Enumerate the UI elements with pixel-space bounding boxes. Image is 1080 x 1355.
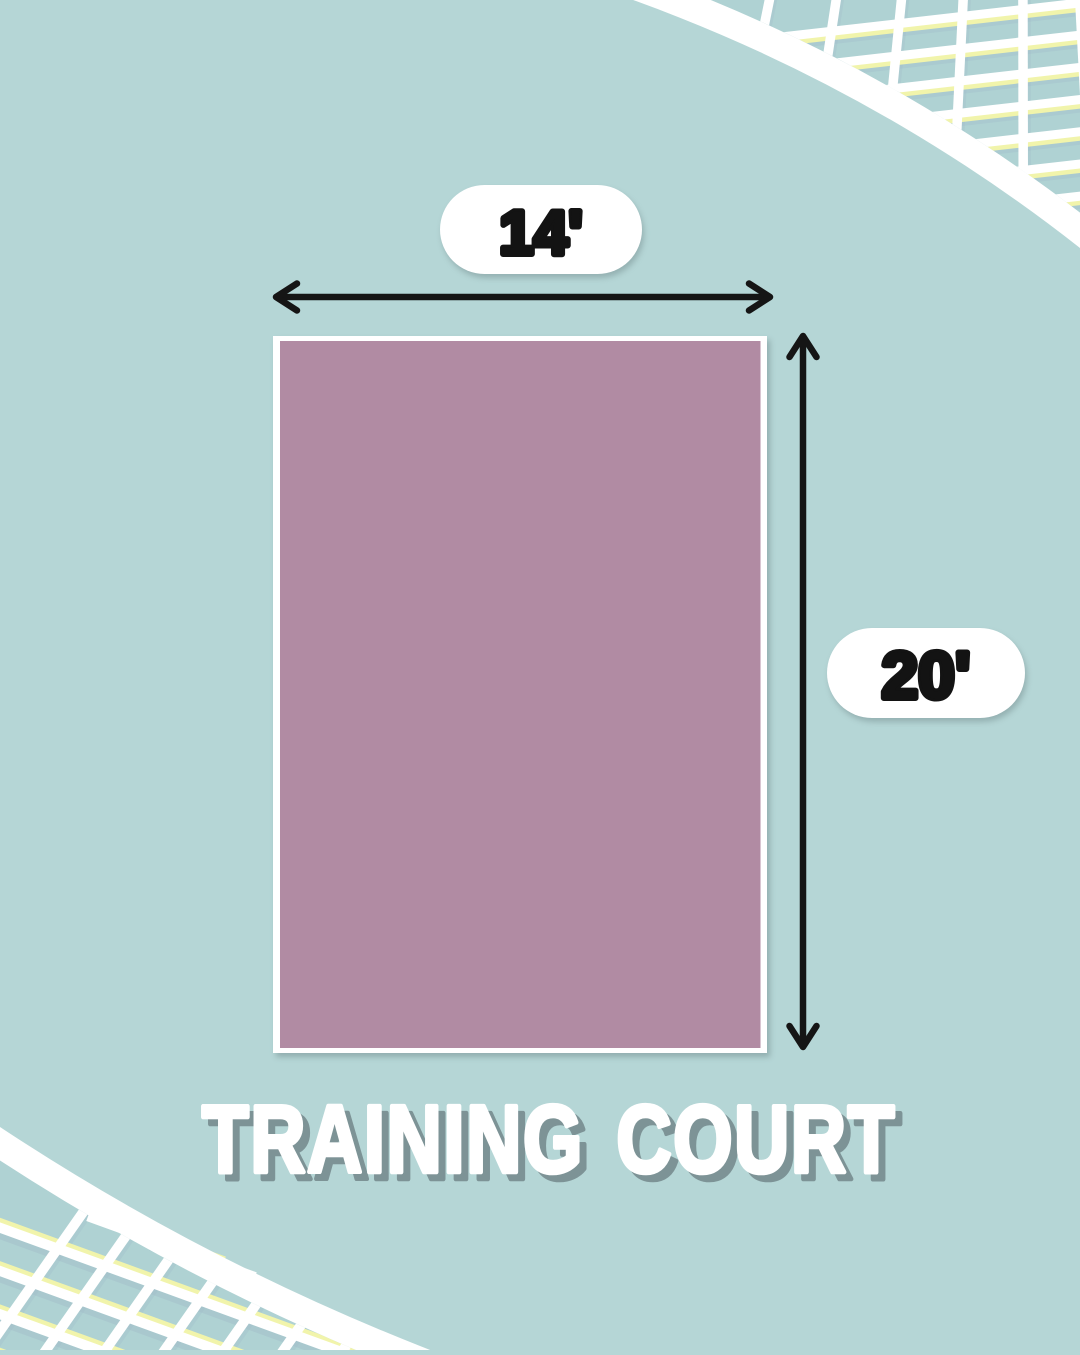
svg-text:TRAINING COURT: TRAINING COURT bbox=[202, 1086, 896, 1193]
svg-text:14': 14' bbox=[499, 199, 583, 268]
svg-text:20': 20' bbox=[881, 638, 970, 712]
